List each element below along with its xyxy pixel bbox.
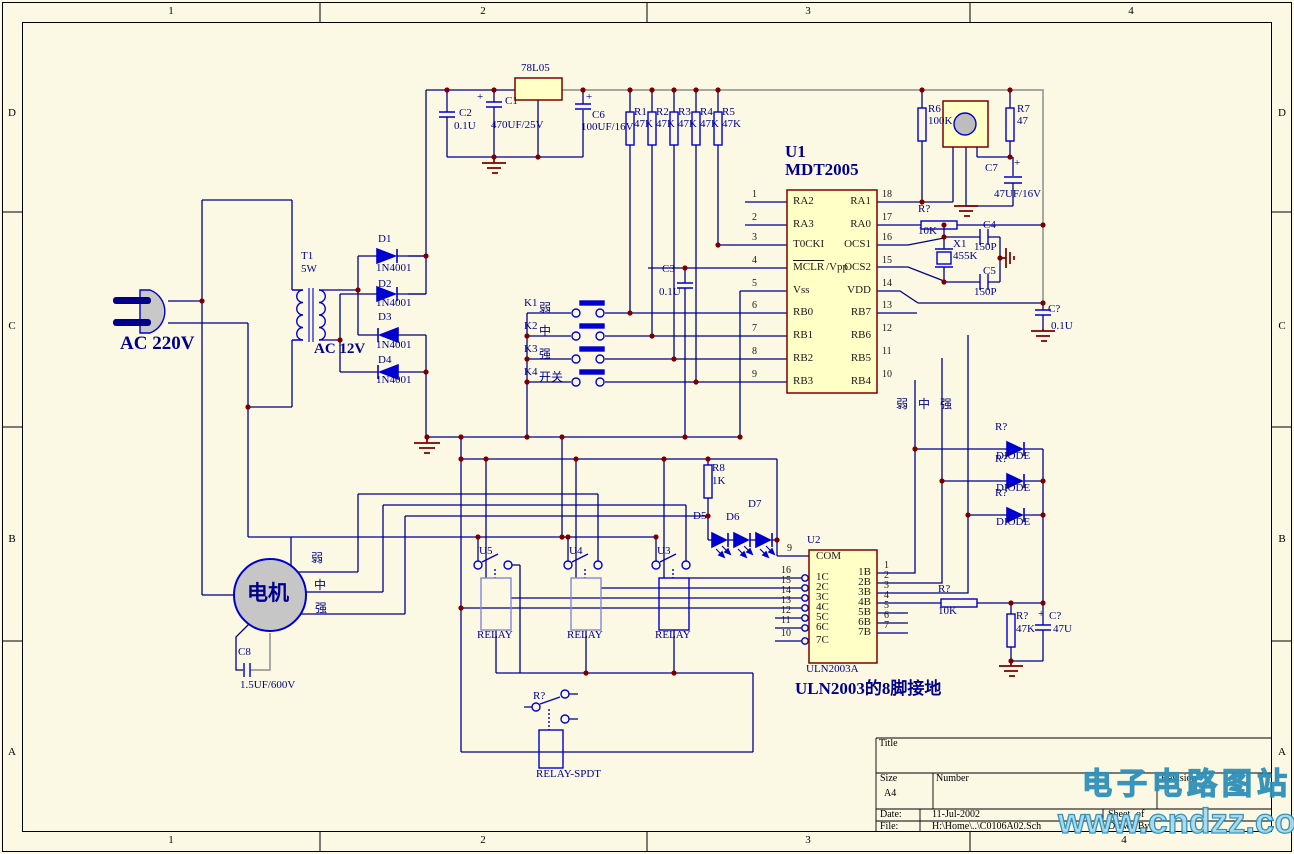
k3-ref: K3 xyxy=(524,344,537,355)
wires xyxy=(168,90,1043,752)
watermark-site-url: www.cndzz.com xyxy=(1058,804,1294,839)
u5-name: RELAY xyxy=(477,630,513,641)
r1-value: 47K xyxy=(634,119,653,130)
k4-ref: K4 xyxy=(524,367,537,378)
c8-capacitor xyxy=(244,663,250,677)
r8-resistor xyxy=(704,465,712,498)
u3-relay-coil xyxy=(659,578,689,630)
c1-capacitor xyxy=(486,102,502,107)
c1-value: 470UF/25V xyxy=(491,120,544,131)
u1-pinnum-17: 17 xyxy=(882,213,892,223)
u5-ref: U5 xyxy=(479,546,492,557)
u1-pinnum-1: 1 xyxy=(752,190,757,200)
grid-row-a-right: A xyxy=(1278,747,1286,758)
ir-receiver-lens xyxy=(954,113,976,135)
r4b-value: 10K xyxy=(938,606,957,617)
c6-ref: C6 xyxy=(592,110,605,121)
c2-ref: C2 xyxy=(459,108,472,119)
ac12-label: AC 12V xyxy=(314,342,365,357)
diode1-ref: R? xyxy=(995,422,1007,433)
grid-row-c-left: C xyxy=(8,321,15,332)
k2-switch xyxy=(572,324,604,340)
d1-diode xyxy=(377,249,397,263)
diode3-ref: R? xyxy=(995,488,1007,499)
u1-ref: U1 xyxy=(785,143,806,160)
c47u-capacitor xyxy=(1035,625,1051,630)
k2-ref: K2 xyxy=(524,321,537,332)
grid-row-b-left: B xyxy=(8,534,15,545)
u5-relay-contact xyxy=(474,554,512,578)
d1-ref: D1 xyxy=(378,234,391,245)
u1-pin-ra0: RA0 xyxy=(850,219,871,230)
plug-body xyxy=(140,290,165,333)
u1-pin-rb1: RB1 xyxy=(793,330,813,341)
u1-pinnum-2: 2 xyxy=(752,213,757,223)
u3-relay-contact xyxy=(652,554,690,578)
c47u-ref: C? xyxy=(1049,611,1061,622)
grid-col-4-top: 4 xyxy=(1128,6,1134,17)
d6-led xyxy=(734,533,752,557)
u2-part: ULN2003A xyxy=(806,664,859,675)
d2-value: 1N4001 xyxy=(376,298,411,309)
k2-function: 中 xyxy=(539,325,551,337)
t1-ref: T1 xyxy=(301,251,313,262)
c47u-value: 47U xyxy=(1053,624,1072,635)
u1-pin-ocs1: OCS1 xyxy=(844,239,871,250)
u2-output-bubbles xyxy=(802,575,808,644)
cvdd-ref: C? xyxy=(1048,304,1060,315)
uln-ground-note: ULN2003的8脚接地 xyxy=(795,680,941,697)
cvdd-value: 0.1U xyxy=(1051,321,1073,332)
r47k-ref: R? xyxy=(1016,611,1028,622)
c7-capacitor xyxy=(1004,177,1022,183)
grid-col-1-top: 1 xyxy=(168,6,174,17)
motor-weak-label: 弱 xyxy=(311,552,323,564)
u2-pin-7c: 7C xyxy=(816,635,829,646)
u1-pin-rb6: RB6 xyxy=(851,330,871,341)
u1-pin-rb4: RB4 xyxy=(851,376,871,387)
u1-pin-ra3: RA3 xyxy=(793,219,814,230)
watermark-site-name: 电子电路图站 xyxy=(1082,770,1292,800)
r8-value: 1K xyxy=(712,476,725,487)
d4-value: 1N4001 xyxy=(376,375,411,386)
k3-function: 强 xyxy=(539,348,551,360)
ground-ir xyxy=(954,206,978,216)
speed-weak-label: 弱 xyxy=(896,398,908,410)
titleblock-file-label: File: xyxy=(880,822,898,832)
u1-pinnum-6: 6 xyxy=(752,301,757,311)
c5-value: 150P xyxy=(974,287,997,298)
k4-switch xyxy=(572,370,604,386)
d3-ref: D3 xyxy=(378,312,391,323)
u1-pinnum-18: 18 xyxy=(882,190,892,200)
u4-name: RELAY xyxy=(567,630,603,641)
u1-pinnum-5: 5 xyxy=(752,279,757,289)
r6-ref: R6 xyxy=(928,104,941,115)
c4-ref: C4 xyxy=(983,220,996,231)
regulator-box xyxy=(515,78,562,100)
t1-value: 5W xyxy=(301,264,317,275)
k3-switch xyxy=(572,347,604,363)
titleblock-date-value: 11-Jul-2002 xyxy=(932,810,980,820)
u2-pinnum-11: 11 xyxy=(781,616,791,626)
d1-value: 1N4001 xyxy=(376,263,411,274)
c6-plus: + xyxy=(586,92,592,103)
c6-value: 100UF/16V xyxy=(581,122,634,133)
u4-relay-coil xyxy=(571,578,601,630)
grid-row-b-right: B xyxy=(1278,534,1285,545)
d7-led xyxy=(756,533,774,557)
u5-relay-coil xyxy=(481,578,511,630)
u1-pin-vss: Vss xyxy=(793,285,810,296)
r17-value: 10K xyxy=(918,226,937,237)
u2-pin-com: COM xyxy=(816,551,841,562)
u1-pinnum-14: 14 xyxy=(882,279,892,289)
u1-pinnum-8: 8 xyxy=(752,347,757,357)
u1-pinnum-7: 7 xyxy=(752,324,757,334)
grid-col-2-top: 2 xyxy=(480,6,486,17)
schematic-sheet: 12341234DCBADCBA78L05C20.1U+C1470UF/25V+… xyxy=(0,0,1294,854)
r7-resistor xyxy=(1006,108,1014,141)
u4-relay-contact xyxy=(564,554,602,578)
d5-led xyxy=(712,533,730,557)
d7-ref: D7 xyxy=(748,499,761,510)
diode2-ref: R? xyxy=(995,454,1007,465)
u1-pinnum-15: 15 xyxy=(882,256,892,266)
titleblock-date-label: Date: xyxy=(880,810,902,820)
r17-ref: R? xyxy=(918,204,930,215)
u1-pin-ra1: RA1 xyxy=(850,196,871,207)
speed-strong-label: 强 xyxy=(940,398,952,410)
u1-pin-vdd: VDD xyxy=(847,285,871,296)
r6-value: 100K xyxy=(928,116,952,127)
grid-row-a-left: A xyxy=(8,747,16,758)
u2-ref: U2 xyxy=(807,535,820,546)
u2-pin-7b: 7B xyxy=(858,627,871,638)
r47k-value: 47K xyxy=(1016,624,1035,635)
u1-pin-rb3: RB3 xyxy=(793,376,813,387)
u1-pinnum-10: 10 xyxy=(882,370,892,380)
motor-mid-label: 中 xyxy=(314,579,326,591)
grid-row-d-left: D xyxy=(8,108,16,119)
x1-crystal xyxy=(935,249,953,267)
u1-pin-ra2: RA2 xyxy=(793,196,814,207)
r2-ref: R2 xyxy=(656,107,669,118)
c47u-plus: + xyxy=(1038,609,1044,620)
u2-pinnum-10: 10 xyxy=(781,629,791,639)
u1-pin-ocs2: OCS2 xyxy=(844,262,871,273)
k4-function: 开关 xyxy=(539,371,563,383)
u1-pin-mclr: MCLR xyxy=(793,262,824,273)
k1-ref: K1 xyxy=(524,298,537,309)
d4-ref: D4 xyxy=(378,355,391,366)
c1-ref: C1 xyxy=(505,96,518,107)
u1-pinnum-13: 13 xyxy=(882,301,892,311)
c3-value: 0.1U xyxy=(659,287,681,298)
c2-capacitor xyxy=(439,112,455,117)
titleblock-title-label: Title xyxy=(879,739,898,749)
u3-ref: U3 xyxy=(657,546,670,557)
ac220-label: AC 220V xyxy=(120,334,194,353)
grid-row-c-right: C xyxy=(1278,321,1285,332)
u1-pinnum-4: 4 xyxy=(752,256,757,266)
u1-part: MDT2005 xyxy=(785,161,859,178)
r6-resistor xyxy=(918,108,926,141)
r2-value: 47K xyxy=(656,119,675,130)
motor-label: 电机 xyxy=(247,583,289,604)
diode3-name: DIODE xyxy=(996,517,1030,528)
titleblock-number-label: Number xyxy=(936,774,969,784)
u2-pinnum-9: 9 xyxy=(787,544,792,554)
d3-value: 1N4001 xyxy=(376,340,411,351)
c3-ref: C3 xyxy=(662,264,675,275)
grid-col-3-top: 3 xyxy=(805,6,811,17)
u1-pinnum-9: 9 xyxy=(752,370,757,380)
d5-ref: D5 xyxy=(693,511,706,522)
r8-ref: R8 xyxy=(712,463,725,474)
u1-pinnum-11: 11 xyxy=(882,347,892,357)
c8-ref: C8 xyxy=(238,647,251,658)
u2-pinnum-7: 7 xyxy=(884,621,889,631)
r1-ref: R1 xyxy=(634,107,647,118)
r7-ref: R7 xyxy=(1017,104,1030,115)
titleblock-size-label: Size xyxy=(880,774,897,784)
x1-ref: X1 xyxy=(953,239,966,250)
titleblock-file-value: H:\Home\..\C0106A02.Sch xyxy=(932,822,1041,832)
c2-value: 0.1U xyxy=(454,121,476,132)
r5-ref: R5 xyxy=(722,107,735,118)
spdt-ref: R? xyxy=(533,691,545,702)
u4-ref: U4 xyxy=(569,546,582,557)
c5-ref: C5 xyxy=(983,266,996,277)
k1-function: 弱 xyxy=(539,302,551,314)
u1-pinnum-12: 12 xyxy=(882,324,892,334)
r47k-resistor xyxy=(1007,614,1015,647)
grid-col-2-bottom: 2 xyxy=(480,835,486,846)
u1-pin-rb5: RB5 xyxy=(851,353,871,364)
c1-plus: + xyxy=(477,92,483,103)
r4b-ref: R? xyxy=(938,584,950,595)
grid-row-d-right: D xyxy=(1278,108,1286,119)
u1-pinnum-3: 3 xyxy=(752,233,757,243)
k1-switch xyxy=(572,301,604,317)
u2-pin-6c: 6C xyxy=(816,622,829,633)
c7-plus: + xyxy=(1014,158,1020,169)
r3-value: 47K xyxy=(678,119,697,130)
regulator-label: 78L05 xyxy=(521,63,550,74)
u3-name: RELAY xyxy=(655,630,691,641)
c6-capacitor xyxy=(575,104,591,109)
grid-col-1-bottom: 1 xyxy=(168,835,174,846)
u1-pin-rb2: RB2 xyxy=(793,353,813,364)
r7-value: 47 xyxy=(1017,116,1028,127)
c8-value: 1.5UF/600V xyxy=(240,680,295,691)
c4-value: 150P xyxy=(974,242,997,253)
d6-ref: D6 xyxy=(726,512,739,523)
motor-strong-label: 强 xyxy=(315,602,327,614)
r4-value: 47K xyxy=(700,119,719,130)
speed-mid-label: 中 xyxy=(918,398,930,410)
titleblock-size-value: A4 xyxy=(884,789,896,799)
r3-ref: R3 xyxy=(678,107,691,118)
spdt-name: RELAY-SPDT xyxy=(536,769,601,780)
u1-pin-rb0: RB0 xyxy=(793,307,813,318)
grid-col-3-bottom: 3 xyxy=(805,835,811,846)
c7-value: 47UF/16V xyxy=(994,189,1041,200)
u1-pin-t0cki: T0CKI xyxy=(793,239,824,250)
c7-ref: C7 xyxy=(985,163,998,174)
u1-pin-rb7: RB7 xyxy=(851,307,871,318)
r5-value: 47K xyxy=(722,119,741,130)
t1-transformer xyxy=(292,288,325,342)
d2-ref: D2 xyxy=(378,279,391,290)
r4-ref: R4 xyxy=(700,107,713,118)
u1-pinnum-16: 16 xyxy=(882,233,892,243)
